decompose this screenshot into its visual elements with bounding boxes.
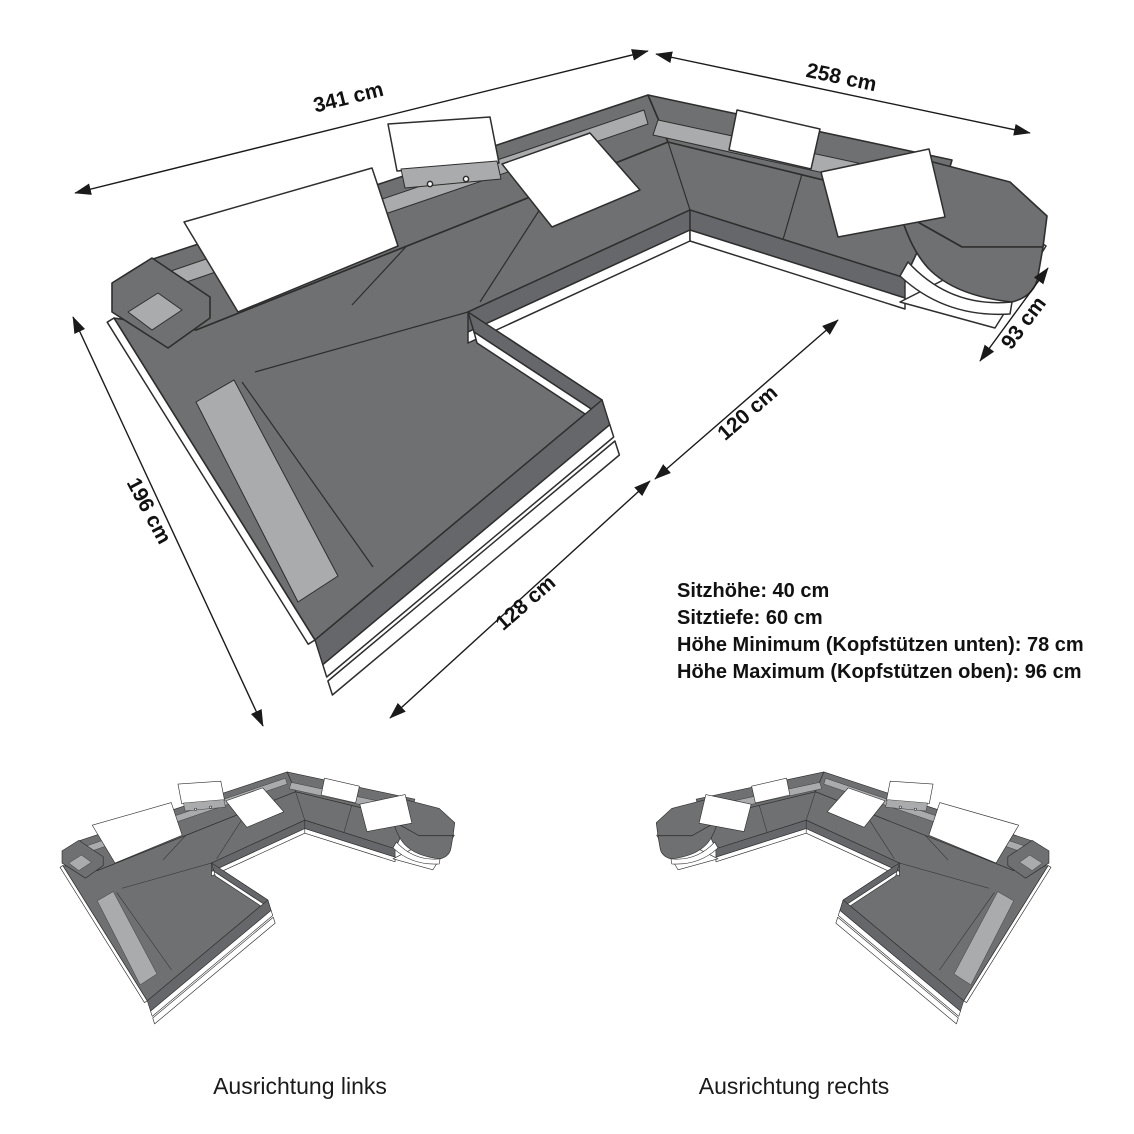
dimension-label-196: 196 cm [122,474,176,548]
dimension-label-258: 258 cm [804,59,878,96]
spec-line-seat-depth: Sitztiefe: 60 cm [677,607,823,629]
variant-right-caption: Ausrichtung rechts [699,1073,889,1099]
sofa-dimension-diagram: 341 cm 258 cm 93 cm 120 cm 196 cm 128 cm… [0,0,1134,1134]
dimension-label-128: 128 cm [491,571,560,635]
spec-line-height-max: Höhe Maximum (Kopfstützen oben): 96 cm [677,661,1081,683]
dimension-label-341: 341 cm [311,78,386,118]
spec-line-seat-height: Sitzhöhe: 40 cm [677,580,829,602]
sofa-dimension-diagram-page: 341 cm 258 cm 93 cm 120 cm 196 cm 128 cm… [0,0,1134,1134]
spec-text-block: Sitzhöhe: 40 cm Sitztiefe: 60 cm Höhe Mi… [677,580,1084,683]
variant-left-caption: Ausrichtung links [213,1073,387,1099]
variant-right-drawing [656,772,1051,1024]
spec-line-height-min: Höhe Minimum (Kopfstützen unten): 78 cm [677,634,1084,656]
dimension-120: 120 cm [655,320,838,479]
dimension-label-120: 120 cm [713,381,782,445]
main-sofa-drawing [107,95,1047,695]
variant-left-drawing [60,772,455,1024]
